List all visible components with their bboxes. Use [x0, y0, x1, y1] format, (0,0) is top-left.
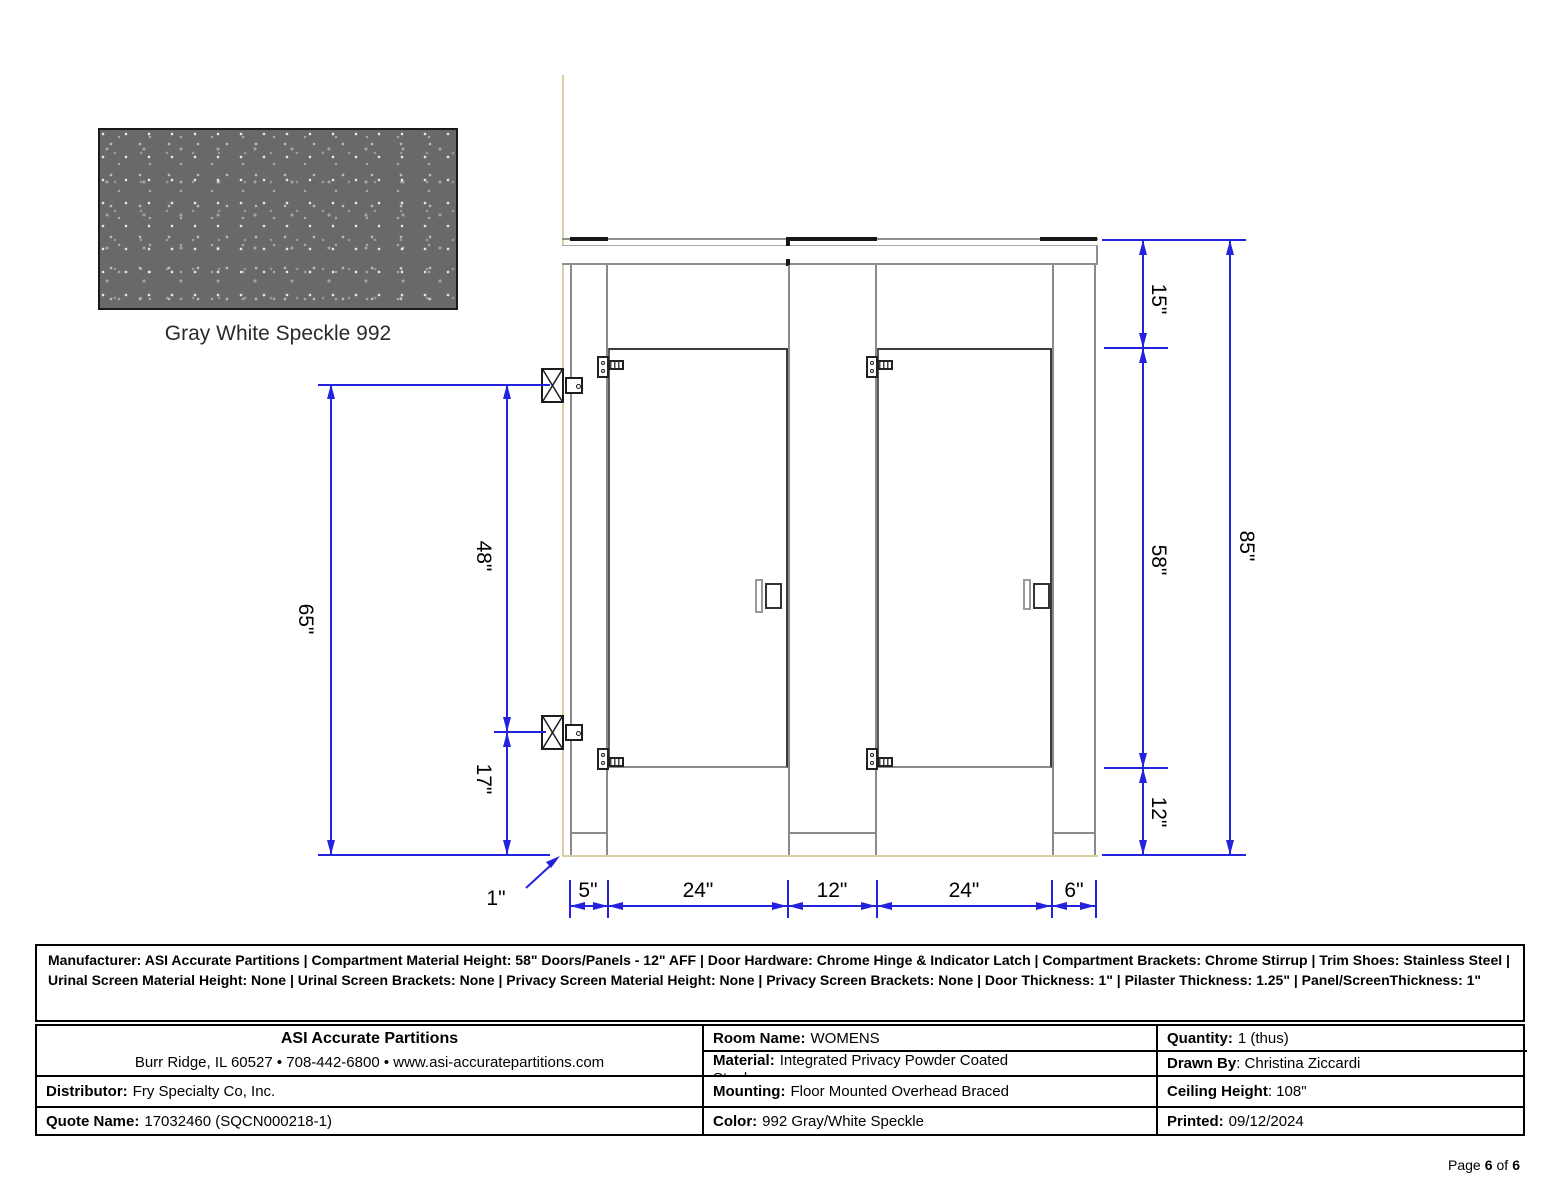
extension-line [1102, 854, 1246, 856]
dim-label-24a: 24" [668, 880, 728, 902]
room-name-row: Room Name:WOMENS [704, 1026, 1156, 1050]
pilaster-3 [1052, 265, 1096, 855]
hinge-arm-icon [608, 360, 624, 370]
trim-shoe [1054, 832, 1094, 834]
headrail-joint [786, 237, 790, 246]
dim-label-65: 65" [294, 589, 316, 649]
color-swatch-label: Gray White Speckle 992 [98, 322, 458, 346]
quote-name-row: Quote Name:17032460 (SQCN000218-1) [37, 1108, 702, 1134]
extension-line [1102, 239, 1246, 241]
title-block-table: ASI Accurate Partitions Burr Ridge, IL 6… [35, 1024, 1525, 1136]
latch-strike-icon [755, 579, 763, 613]
pilaster-2 [788, 265, 877, 855]
quantity-row: Quantity:1 (thus) [1158, 1026, 1527, 1050]
dim-label-15: 15" [1147, 269, 1169, 329]
leader-arrow-icon [520, 854, 568, 894]
trim-shoe [790, 832, 875, 834]
extension-line [318, 854, 550, 856]
dim-label-12: 12" [1147, 782, 1169, 842]
wall-bracket-tab-icon [565, 377, 583, 394]
headrail-bracket-segment [788, 237, 877, 241]
dim-line-48 [506, 385, 508, 732]
dim-line-17 [506, 732, 508, 854]
dim-label-48: 48" [472, 526, 494, 586]
dim-label-17: 17" [472, 749, 494, 809]
company-name: ASI Accurate Partitions [37, 1026, 702, 1052]
latch-strike-icon [1023, 579, 1031, 610]
latch-icon [765, 583, 782, 609]
dim-line-65 [330, 385, 332, 855]
floor-line [562, 855, 1098, 857]
extension-tick [876, 880, 878, 918]
shop-drawing-page: Gray White Speckle 992 [0, 0, 1562, 1194]
color-swatch-image [98, 128, 458, 310]
hinge-arm-icon [877, 757, 893, 767]
color-row: Color:992 Gray/White Speckle [704, 1108, 1156, 1134]
dim-line-bottom [570, 905, 1096, 907]
dim-label-24b: 24" [934, 880, 994, 902]
mounting-row: Mounting:Floor Mounted Overhead Braced [704, 1077, 1156, 1106]
company-address: Burr Ridge, IL 60527 • 708-442-6800 • ww… [37, 1050, 702, 1075]
dim-label-85: 85" [1235, 516, 1257, 576]
headrail-bracket-segment [1040, 237, 1097, 241]
door-2 [877, 348, 1052, 768]
hinge-arm-icon [608, 757, 624, 767]
ceiling-height-row: Ceiling Height: 108" [1158, 1077, 1527, 1106]
extension-line [1104, 767, 1168, 769]
dim-label-12b: 12" [802, 880, 862, 902]
extension-tick [787, 880, 789, 918]
dim-label-6: 6" [1044, 880, 1104, 902]
printed-date-row: Printed:09/12/2024 [1158, 1108, 1527, 1134]
headrail-band [562, 245, 1098, 265]
specification-summary: Manufacturer: ASI Accurate Partitions | … [35, 944, 1525, 1022]
door-1 [608, 348, 788, 768]
extension-line [494, 731, 546, 733]
page-number: Page6of6 [1300, 1157, 1520, 1173]
dim-label-58: 58" [1147, 530, 1169, 590]
material-row: Material:Integrated Privacy Powder Coate… [704, 1052, 1156, 1075]
extension-line [318, 384, 550, 386]
extension-line [1104, 347, 1168, 349]
latch-icon [1033, 583, 1050, 609]
drawn-by-row: Drawn By: Christina Ziccardi [1158, 1052, 1527, 1075]
headrail-bracket-segment [570, 237, 608, 241]
dim-line-85 [1229, 240, 1231, 854]
trim-shoe [572, 832, 606, 834]
distributor-row: Distributor:Fry Specialty Co, Inc. [37, 1077, 702, 1106]
hinge-arm-icon [877, 360, 893, 370]
dim-label-1: 1" [466, 888, 526, 910]
wall-bracket-tab-icon [565, 724, 583, 741]
